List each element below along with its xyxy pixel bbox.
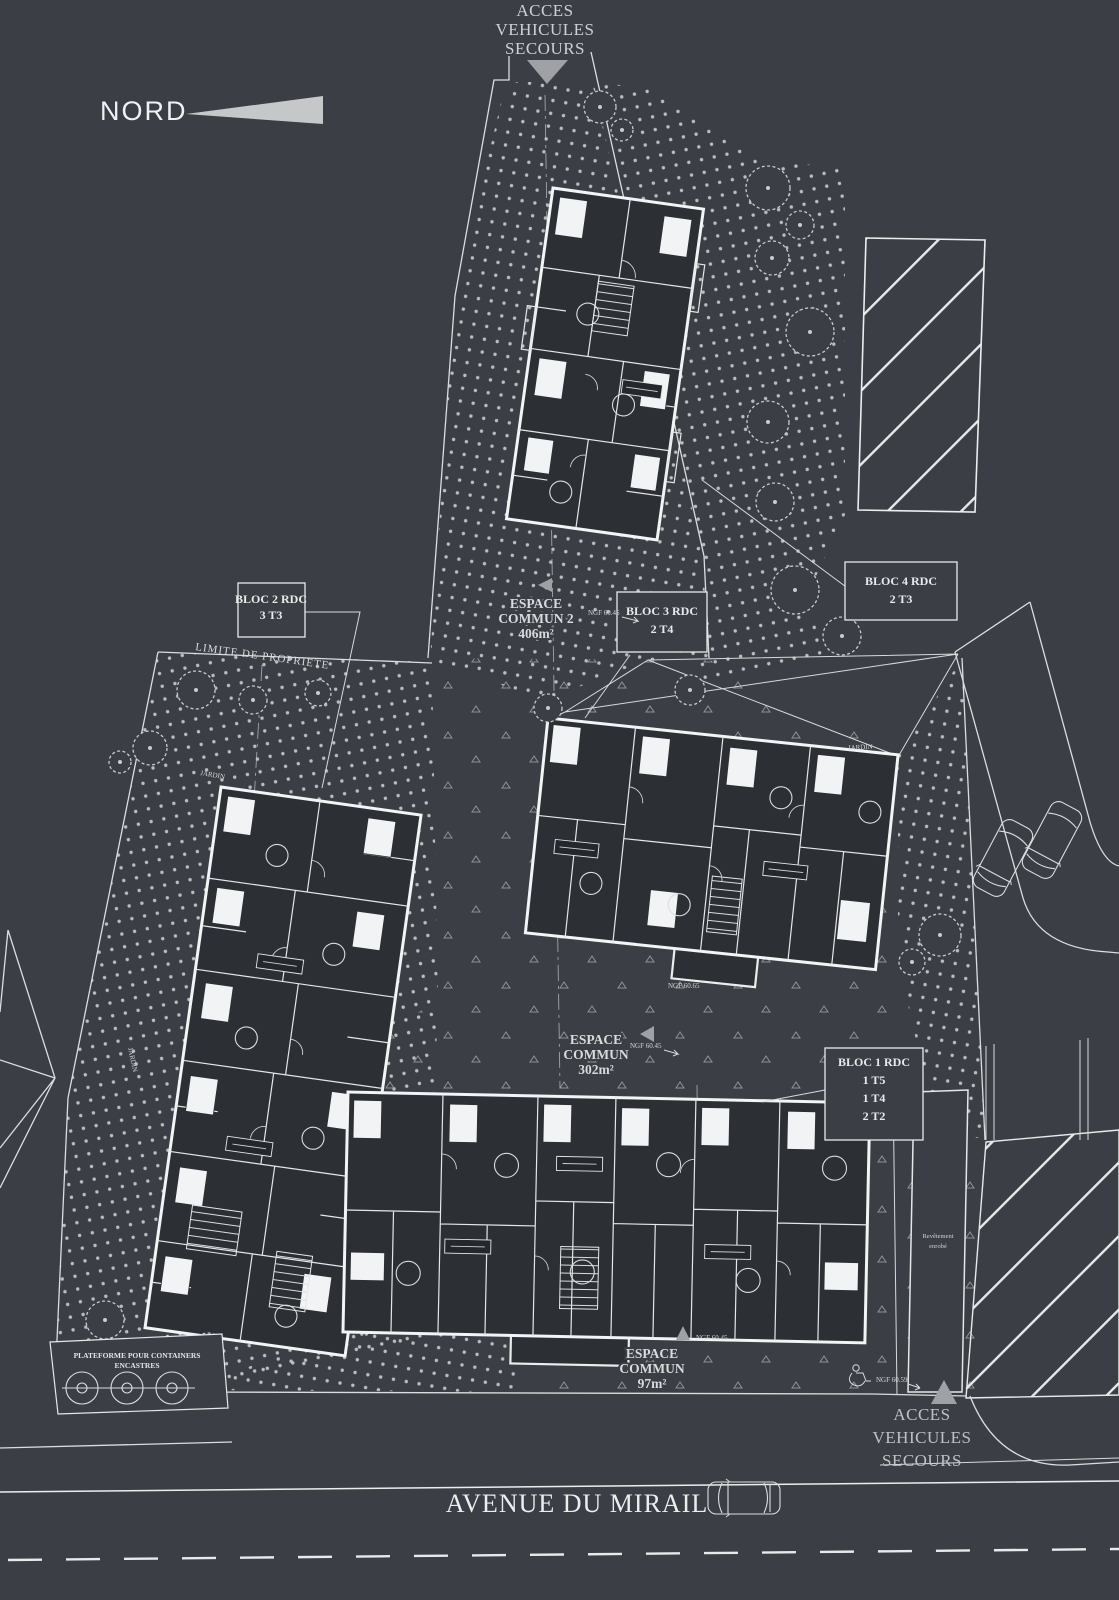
espace97-label-3: 97m² xyxy=(638,1376,667,1391)
tree-icon xyxy=(756,483,794,521)
platform-label-2: ENCASTRES xyxy=(114,1361,159,1370)
compass: NORD xyxy=(100,96,323,126)
paved-strip-label-1: Revêtement xyxy=(922,1233,953,1240)
bloc4-label-1: BLOC 4 RDC xyxy=(865,574,937,588)
espace2-label-3: 406m² xyxy=(518,626,554,641)
tree-icon xyxy=(584,91,616,123)
tree-icon xyxy=(611,119,633,141)
access-top-line2: VEHICULES xyxy=(496,20,595,39)
ngf-level-label: NGF 60.45 xyxy=(630,1042,662,1050)
espace2-label-1: ESPACE xyxy=(510,596,562,611)
tree-icon xyxy=(771,566,819,614)
espace2-label-2: COMMUN 2 xyxy=(498,611,574,626)
bloc1-building xyxy=(342,1092,869,1371)
bloc4-label-2: 2 T3 xyxy=(890,592,913,606)
tree-icon xyxy=(786,211,814,239)
tree-icon xyxy=(534,694,562,722)
access-bottom-line1: ACCES xyxy=(893,1405,950,1424)
espace97-label-2: COMMUN xyxy=(619,1361,684,1376)
bloc3-label-1: BLOC 3 RDC xyxy=(626,604,698,618)
car-icon xyxy=(1017,797,1088,883)
north-arrow-icon xyxy=(186,96,323,124)
tree-icon xyxy=(746,166,790,210)
access-top-line1: ACCES xyxy=(516,1,573,20)
bloc2-label-2: 3 T3 xyxy=(260,608,283,622)
bloc1-label-4: 2 T2 xyxy=(863,1109,886,1123)
access-bottom-line3: SECOURS xyxy=(882,1451,962,1470)
access-arrow-down-icon xyxy=(527,60,568,84)
platform-label-1: PLATEFORME POUR CONTAINERS xyxy=(74,1351,201,1360)
bloc2-label-1: BLOC 2 RDC xyxy=(235,592,307,606)
site-plan: Revêtement enrobé PLATEFORME POUR CONTAI… xyxy=(0,0,1119,1600)
jardin-label: JARDIN xyxy=(848,743,873,752)
ngf-level-label: NGF 60.65 xyxy=(668,982,700,990)
adjacent-structure xyxy=(0,930,55,1188)
tree-icon xyxy=(675,675,705,705)
north-label: NORD xyxy=(100,96,188,126)
bloc3-label-2: 2 T4 xyxy=(651,622,674,636)
tree-icon xyxy=(823,617,861,655)
espace97-label-1: ESPACE xyxy=(626,1346,678,1361)
tree-icon xyxy=(86,1301,124,1339)
espace302-label-2: COMMUN xyxy=(563,1047,628,1062)
ngf-level-label: NGF 60.45 xyxy=(588,609,620,617)
espace302-label-3: 302m² xyxy=(578,1062,614,1077)
access-top-line3: SECOURS xyxy=(505,39,585,58)
ngf-level-label: NGF 60.59 xyxy=(876,1376,908,1384)
paved-strip-label-2: enrobé xyxy=(929,1243,947,1250)
bloc1-label-3: 1 T4 xyxy=(863,1091,886,1105)
street-name: AVENUE DU MIRAIL xyxy=(446,1489,709,1518)
espace302-label-1: ESPACE xyxy=(570,1032,622,1047)
container-platform: PLATEFORME POUR CONTAINERS ENCASTRES xyxy=(50,1334,228,1414)
tree-icon xyxy=(133,731,167,765)
bloc1-label-2: 1 T5 xyxy=(863,1073,886,1087)
tree-icon xyxy=(786,308,834,356)
hatched-zone-bottom-right xyxy=(966,1130,1119,1398)
access-top-label: ACCES VEHICULES SECOURS xyxy=(496,1,595,58)
tree-icon xyxy=(177,671,215,709)
tree-icon xyxy=(899,949,925,975)
bloc1-label-1: BLOC 1 RDC xyxy=(838,1055,910,1069)
tree-icon xyxy=(239,686,267,714)
tree-icon xyxy=(919,914,961,956)
tree-icon xyxy=(109,751,131,773)
tree-icon xyxy=(755,241,789,275)
hatched-parking-zone xyxy=(858,238,985,512)
ngf-level-label: NGF 60.45 xyxy=(696,1334,728,1342)
tree-icon xyxy=(305,680,331,706)
tree-icon xyxy=(747,401,789,443)
access-bottom-line2: VEHICULES xyxy=(873,1428,972,1447)
